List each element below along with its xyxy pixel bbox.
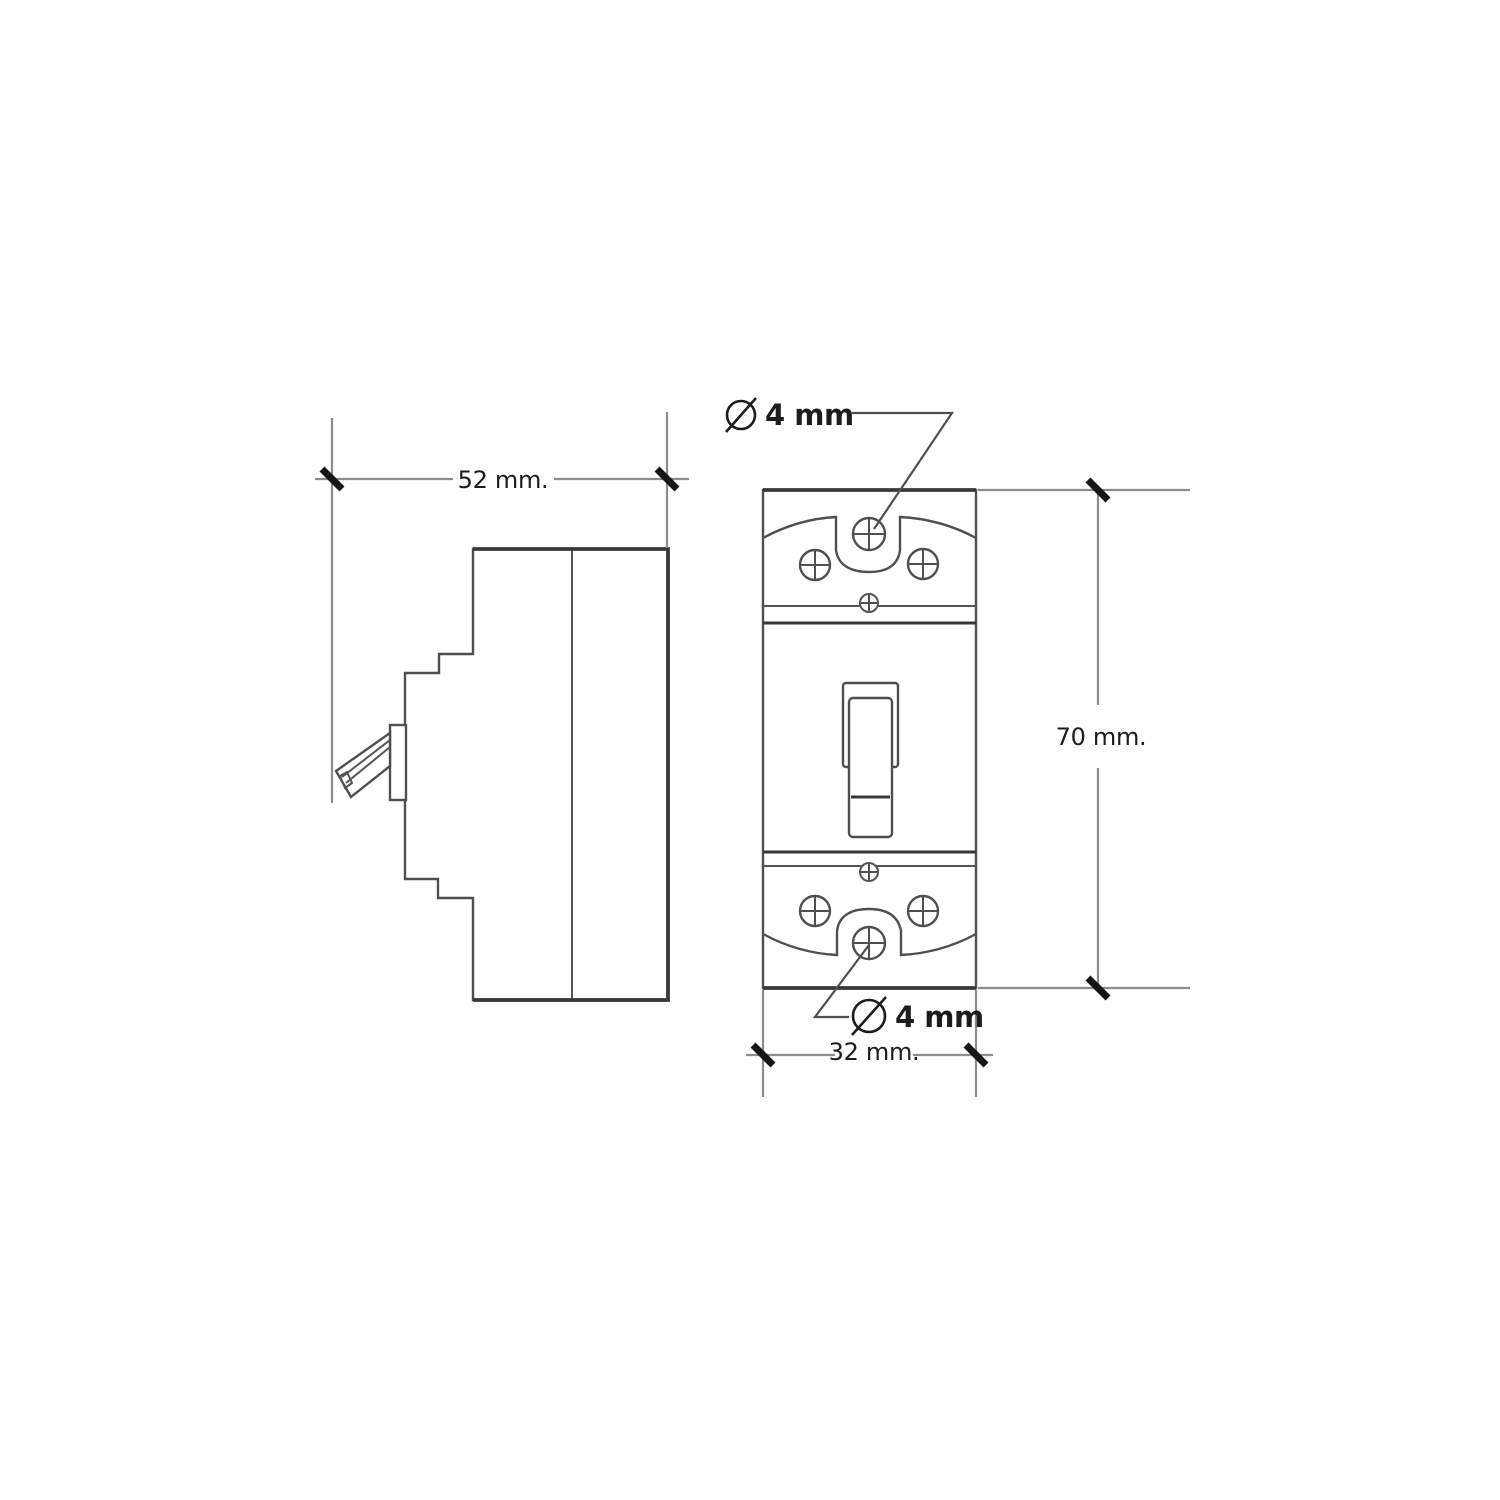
technical-drawing-canvas: 52 mm. 70 mm. 32 mm. 4 mm: [0, 0, 1500, 1500]
bottom-mount-hole: [853, 927, 885, 959]
dimension-label-32mm: 32 mm.: [829, 1038, 920, 1066]
dimension-front-height: 70 mm.: [978, 480, 1190, 998]
terminal-screw-bottom-right: [908, 896, 938, 926]
callout-bottom-mount-hole: 4 mm: [815, 945, 984, 1035]
callout-label-top: 4 mm: [765, 398, 854, 432]
terminal-screw-top-right: [908, 549, 938, 579]
toggle-base-plate: [390, 725, 406, 800]
leader-line: [852, 413, 952, 529]
leader-line: [815, 945, 869, 1017]
diameter-icon: [852, 997, 886, 1035]
side-view: [336, 549, 668, 1000]
callout-top-mount-hole: 4 mm: [726, 398, 952, 529]
cover-screw-top: [860, 594, 878, 612]
breaker-drawing: 52 mm. 70 mm. 32 mm. 4 mm: [0, 0, 1500, 1500]
callout-label-bottom: 4 mm: [895, 1000, 984, 1034]
side-view-strong-edges: [473, 549, 668, 1000]
dimension-side-width: 52 mm.: [315, 412, 689, 803]
top-mount-hole: [853, 518, 885, 550]
terminal-screw-bottom-left: [800, 896, 830, 926]
dimension-label-52mm: 52 mm.: [458, 466, 549, 494]
terminal-screw-top-left: [800, 550, 830, 580]
toggle-lever: [336, 733, 390, 797]
diameter-icon: [726, 398, 756, 432]
front-view: [763, 490, 976, 988]
dimension-label-70mm: 70 mm.: [1056, 723, 1147, 751]
toggle-handle: [849, 698, 892, 837]
side-view-outline: [405, 549, 668, 1000]
toggle-switch: [843, 683, 898, 837]
cover-screw-bottom: [860, 863, 878, 881]
